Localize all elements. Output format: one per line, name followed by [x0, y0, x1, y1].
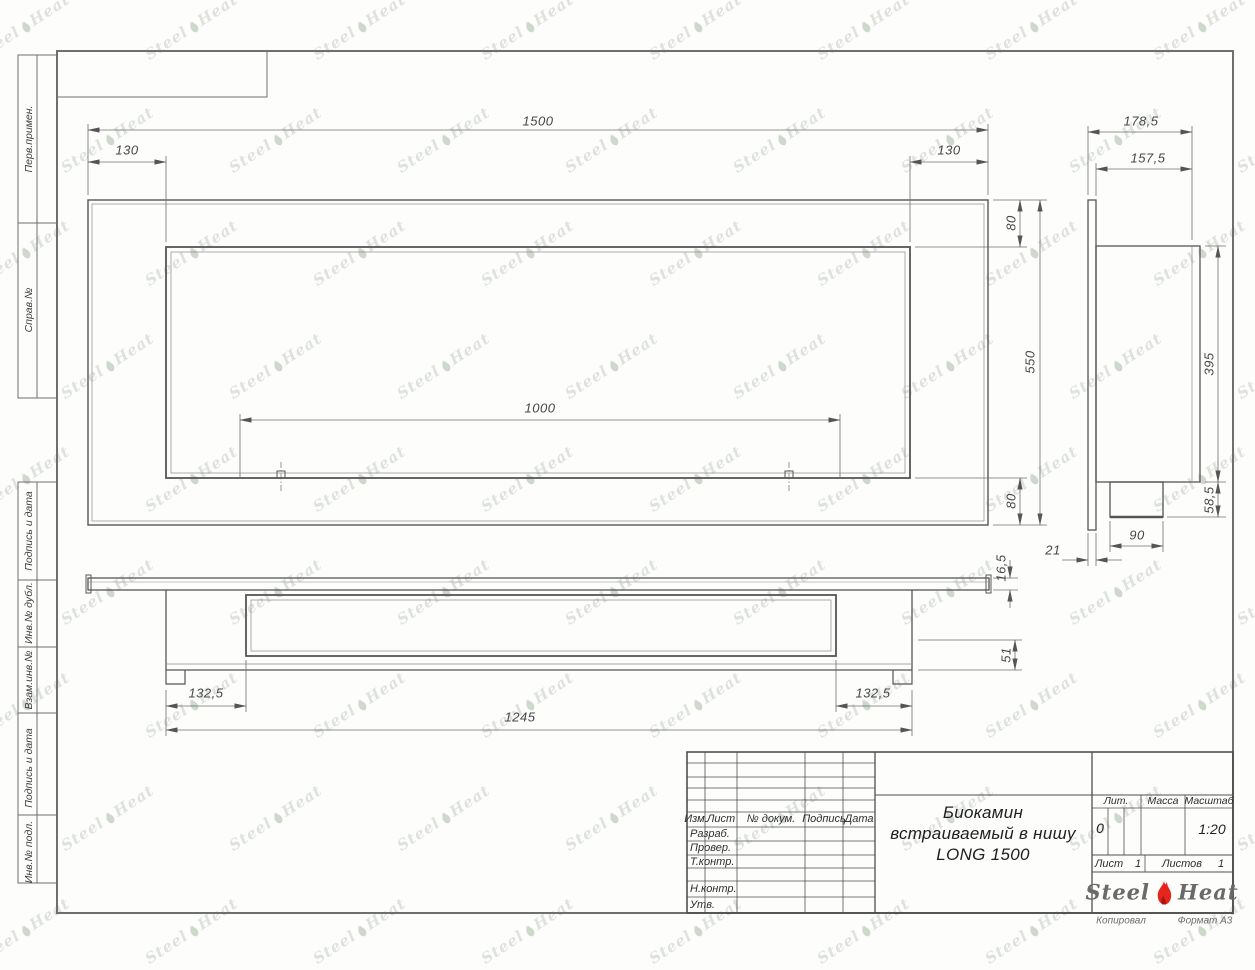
drawing-sheet: SteelHeatSteelHeatSteelHeatSteelHeatStee…	[0, 0, 1255, 970]
tb-sheet-label: Лист	[1095, 858, 1123, 870]
dim-bottom-inner-depth: 51	[999, 647, 1014, 662]
steelheat-logo: Steel Heat	[1085, 879, 1238, 906]
tb-sheets-label: Листов	[1162, 858, 1202, 870]
tb-col-doc: № докум.	[747, 813, 795, 825]
tb-scale-value: 1:20	[1198, 821, 1225, 837]
margin-label-inv-dubl: Инв.№ дубл.	[23, 582, 35, 644]
tb-lit-value: 0	[1096, 820, 1104, 836]
dim-side-body-height: 395	[1202, 352, 1217, 375]
dim-front-top-margin: 80	[1004, 215, 1019, 230]
tb-col-list: Лист	[707, 813, 735, 825]
logo-steel-text: Steel	[1085, 880, 1150, 905]
dim-side-total-depth: 178,5	[1123, 114, 1158, 129]
dim-bottom-flange: 16,5	[994, 554, 1009, 581]
dim-front-bottom-margin: 80	[1004, 493, 1019, 508]
doc-title-line3: LONG 1500	[936, 845, 1029, 865]
tb-col-data: Дата	[844, 813, 873, 825]
tb-sheets-value: 1	[1218, 858, 1224, 870]
tb-scale-label: Масштаб	[1184, 795, 1233, 807]
doc-title-line2: встраиваемый в нишу	[890, 824, 1076, 844]
dim-bottom-left-offset: 132,5	[188, 686, 223, 701]
dim-front-right-offset: 130	[937, 143, 960, 158]
dim-side-tray-height: 58,5	[1202, 486, 1217, 513]
tb-col-izm: Изм.	[684, 813, 707, 825]
margin-label-vzam: Взам.инв.№	[23, 650, 35, 709]
tb-sheet-value: 1	[1135, 858, 1141, 870]
dim-front-width: 1500	[523, 114, 554, 129]
dim-front-height: 550	[1023, 350, 1038, 373]
margin-label-inv-podl: Инв.№ подл.	[23, 821, 35, 883]
dim-side-panel-thickness: 21	[1045, 543, 1060, 558]
tb-row-nkontr: Н.контр.	[690, 883, 737, 895]
dim-side-tray-width: 90	[1129, 528, 1144, 543]
doc-title-line1: Биокамин	[943, 803, 1023, 823]
tb-row-prover: Провер.	[690, 842, 731, 854]
margin-label-sprav: Справ.№	[23, 288, 35, 333]
tb-row-utv: Утв.	[690, 899, 715, 911]
dim-bottom-body-length: 1245	[505, 710, 536, 725]
margin-label-podpis1: Подпись и дата	[23, 491, 35, 570]
flame-icon	[1153, 879, 1175, 906]
tb-lit-label: Лит.	[1104, 795, 1129, 807]
dim-side-body-depth: 157,5	[1130, 151, 1165, 166]
margin-label-podpis2: Подпись и дата	[23, 728, 35, 807]
dim-front-opening: 1000	[525, 401, 556, 416]
dim-bottom-right-offset: 132,5	[855, 686, 890, 701]
margin-label-perv: Перв.примен.	[23, 106, 35, 173]
copied-label: Копировал	[1096, 916, 1146, 927]
format-label: Формат А3	[1178, 916, 1233, 927]
logo-heat-text: Heat	[1178, 880, 1239, 905]
tb-col-podpis: Подпись	[802, 813, 846, 825]
text-layer: 1500 130 130 80 550 80 1000 178,5 157,5 …	[0, 0, 1255, 970]
tb-mass-label: Масса	[1147, 795, 1178, 807]
tb-row-tkontr: Т.контр.	[690, 856, 734, 868]
dim-front-left-offset: 130	[115, 143, 138, 158]
tb-row-razrab: Разраб.	[690, 828, 730, 840]
